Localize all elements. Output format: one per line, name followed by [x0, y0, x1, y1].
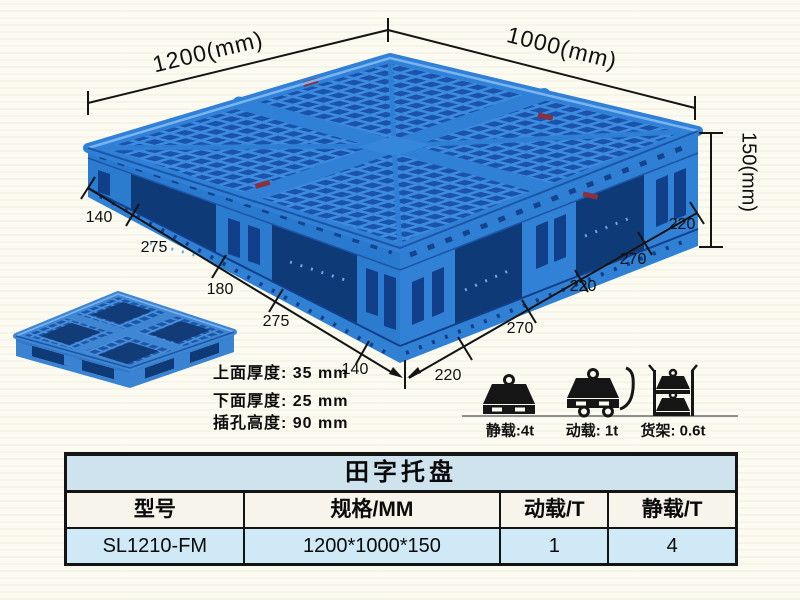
- dim-label-right-5: 220: [669, 216, 696, 234]
- product-sheet: 1200(mm) 1000(mm) 150(mm) 140 275 180 27…: [0, 0, 800, 600]
- table-row: SL1210-FM 1200*1000*150 1 4: [67, 529, 735, 563]
- rack-load-icon: [649, 365, 697, 416]
- static-load-label: 静载:4t: [486, 420, 534, 441]
- table-header-row: 型号 规格/MM 动载/T 静载/T: [67, 493, 735, 529]
- small-pallet-image: [16, 294, 234, 388]
- dim-label-right-1: 220: [435, 367, 462, 385]
- table-header-spec: 规格/MM: [245, 493, 502, 527]
- table-header-static-load: 静载/T: [609, 493, 735, 527]
- table-cell-dynamic-load: 1: [501, 529, 609, 563]
- spec-top-thickness: 上面厚度: 35 mm: [213, 359, 348, 383]
- table-cell-static-load: 4: [609, 529, 735, 563]
- load-icons: [462, 365, 738, 416]
- dim-label-left-4: 275: [263, 313, 290, 331]
- dynamic-load-label: 动载: 1t: [566, 420, 619, 441]
- dim-label-right-4: 270: [620, 251, 647, 269]
- table-header-dynamic-load: 动载/T: [501, 493, 609, 527]
- spec-bottom-thickness: 下面厚度: 25 mm: [213, 387, 348, 411]
- spec-fork-height: 插孔高度: 90 mm: [213, 409, 348, 433]
- static-load-icon: [483, 376, 535, 415]
- table-cell-model: SL1210-FM: [67, 529, 245, 563]
- dim-label-height: 150(mm): [737, 132, 760, 212]
- dynamic-load-icon: [567, 368, 633, 416]
- dim-label-left-2: 275: [141, 239, 168, 257]
- table-header-model: 型号: [67, 493, 245, 527]
- spec-table: 田字托盘 型号 规格/MM 动载/T 静载/T SL1210-FM 1200*1…: [64, 452, 738, 566]
- dim-label-left-1: 140: [86, 209, 113, 227]
- dim-label-right-3: 220: [570, 278, 597, 296]
- table-cell-spec: 1200*1000*150: [245, 529, 502, 563]
- table-title: 田字托盘: [67, 456, 735, 493]
- rack-load-label: 货架: 0.6t: [640, 420, 705, 441]
- dim-label-right-2: 270: [507, 320, 534, 338]
- dim-label-left-3: 180: [207, 281, 234, 299]
